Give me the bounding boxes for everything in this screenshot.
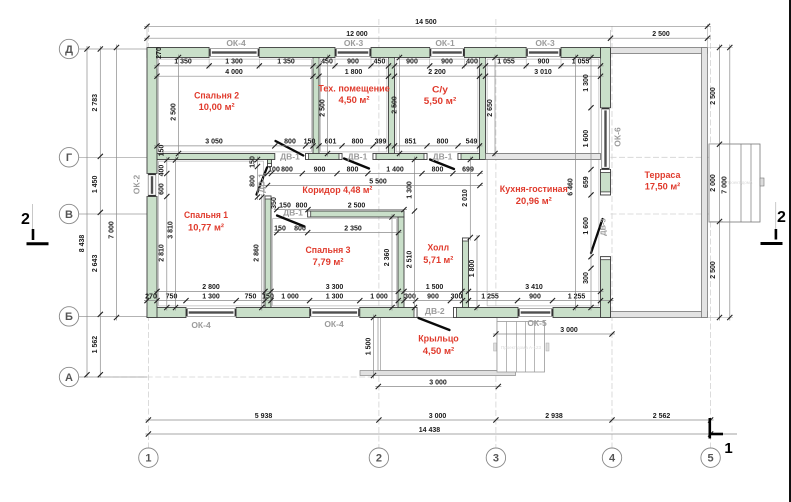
- svg-text:1 255: 1 255: [568, 293, 586, 300]
- svg-text:2 810: 2 810: [159, 244, 166, 262]
- svg-text:ДВ-1: ДВ-1: [433, 152, 453, 162]
- svg-text:2 350: 2 350: [344, 225, 362, 232]
- svg-text:2 500: 2 500: [710, 261, 717, 279]
- svg-text:549: 549: [466, 139, 478, 146]
- svg-text:300: 300: [451, 293, 463, 300]
- svg-text:900: 900: [314, 166, 326, 173]
- svg-text:1 300: 1 300: [202, 293, 220, 300]
- svg-text:659: 659: [583, 176, 590, 188]
- svg-text:ОК-2: ОК-2: [132, 175, 142, 195]
- svg-text:Коридор 4,48 м²: Коридор 4,48 м²: [302, 185, 372, 196]
- svg-text:2: 2: [376, 453, 382, 465]
- svg-text:3: 3: [493, 453, 499, 465]
- svg-text:А: А: [65, 372, 73, 384]
- svg-text:399: 399: [375, 139, 387, 146]
- svg-text:Спальня 2: Спальня 2: [194, 90, 239, 101]
- svg-text:ДВ-1: ДВ-1: [348, 152, 368, 162]
- svg-text:7 000: 7 000: [722, 176, 729, 194]
- svg-text:1 450: 1 450: [92, 176, 99, 194]
- svg-text:14 438: 14 438: [419, 427, 441, 434]
- svg-text:3 300: 3 300: [326, 284, 344, 291]
- svg-text:800: 800: [249, 175, 256, 187]
- svg-text:3 050: 3 050: [205, 139, 223, 146]
- svg-text:8 438: 8 438: [79, 235, 86, 253]
- svg-text:1 350: 1 350: [277, 59, 295, 66]
- svg-text:150: 150: [304, 139, 316, 146]
- svg-text:1 800: 1 800: [469, 260, 476, 278]
- svg-text:6 460: 6 460: [567, 178, 574, 196]
- svg-text:800: 800: [352, 139, 364, 146]
- svg-text:2: 2: [21, 211, 30, 228]
- svg-text:3 000: 3 000: [429, 379, 447, 386]
- svg-text:300: 300: [583, 272, 590, 284]
- svg-text:851: 851: [405, 139, 417, 146]
- svg-text:Спальня 3: Спальня 3: [306, 245, 351, 256]
- svg-text:1 400: 1 400: [386, 166, 404, 173]
- svg-text:5: 5: [708, 453, 714, 465]
- svg-text:699: 699: [462, 166, 474, 173]
- svg-text:2 783: 2 783: [92, 94, 99, 112]
- svg-text:350: 350: [271, 197, 278, 209]
- svg-text:400: 400: [466, 59, 478, 66]
- svg-text:ОК-3: ОК-3: [344, 38, 364, 48]
- svg-text:900: 900: [406, 59, 418, 66]
- svg-text:Терраса: Терраса: [645, 170, 682, 181]
- svg-text:900: 900: [347, 59, 359, 66]
- svg-text:800: 800: [347, 166, 359, 173]
- svg-text:2 500: 2 500: [710, 87, 717, 105]
- svg-text:Проект дома А-123: Проект дома А-123: [501, 345, 542, 350]
- svg-text:270: 270: [156, 47, 163, 59]
- svg-text:1 055: 1 055: [497, 59, 515, 66]
- svg-text:4,50 м²: 4,50 м²: [339, 95, 370, 106]
- svg-text:В: В: [65, 209, 73, 221]
- svg-text:3 810: 3 810: [167, 221, 174, 239]
- svg-text:Г: Г: [66, 152, 73, 164]
- svg-text:ДВ-2: ДВ-2: [425, 306, 445, 316]
- svg-text:2: 2: [777, 209, 786, 226]
- svg-text:Тех. помещение: Тех. помещение: [318, 83, 390, 94]
- svg-text:7 000: 7 000: [108, 221, 115, 239]
- svg-text:270: 270: [145, 293, 157, 300]
- svg-text:Д: Д: [65, 44, 73, 56]
- svg-text:12 000: 12 000: [346, 31, 368, 38]
- svg-text:ДВ-1: ДВ-1: [280, 152, 300, 162]
- svg-text:Крыльцо: Крыльцо: [418, 334, 459, 345]
- svg-text:150: 150: [249, 156, 256, 168]
- svg-text:2 500: 2 500: [652, 31, 670, 38]
- svg-text:1 000: 1 000: [370, 293, 388, 300]
- svg-text:2 562: 2 562: [653, 413, 671, 420]
- svg-text:1 600: 1 600: [583, 217, 590, 235]
- svg-text:1 500: 1 500: [426, 284, 444, 291]
- svg-text:4: 4: [609, 453, 616, 465]
- svg-text:600: 600: [159, 183, 166, 195]
- svg-text:С/у: С/у: [432, 84, 449, 95]
- svg-text:2 200: 2 200: [428, 69, 446, 76]
- svg-text:ОК-4: ОК-4: [191, 320, 211, 330]
- svg-text:5,71 м²: 5,71 м²: [423, 255, 453, 266]
- svg-text:150: 150: [262, 293, 274, 300]
- svg-text:1 562: 1 562: [92, 336, 99, 354]
- svg-text:2 650: 2 650: [487, 99, 494, 117]
- svg-text:2 938: 2 938: [545, 413, 563, 420]
- svg-text:150: 150: [274, 225, 286, 232]
- svg-text:750: 750: [245, 293, 257, 300]
- svg-text:4 000: 4 000: [225, 69, 243, 76]
- svg-text:2 860: 2 860: [254, 244, 261, 262]
- svg-text:ДВ-1: ДВ-1: [257, 173, 267, 193]
- svg-text:1 055: 1 055: [572, 59, 590, 66]
- svg-text:3 000: 3 000: [429, 413, 447, 420]
- svg-text:3 000: 3 000: [560, 327, 578, 334]
- svg-text:900: 900: [427, 293, 439, 300]
- svg-text:2 500: 2 500: [170, 103, 177, 121]
- svg-text:2 500: 2 500: [348, 202, 366, 209]
- svg-text:ОК-3: ОК-3: [535, 38, 555, 48]
- svg-text:2 360: 2 360: [384, 249, 391, 267]
- svg-text:1 800: 1 800: [345, 69, 363, 76]
- svg-text:1 300: 1 300: [225, 59, 243, 66]
- svg-text:800: 800: [437, 139, 449, 146]
- svg-text:4,50 м²: 4,50 м²: [423, 346, 455, 357]
- svg-text:7,79 м²: 7,79 м²: [313, 257, 344, 268]
- svg-text:20,96 м²: 20,96 м²: [516, 196, 552, 207]
- svg-text:ОК-1: ОК-1: [435, 38, 455, 48]
- svg-text:5 938: 5 938: [255, 413, 273, 420]
- svg-text:ДВ-1: ДВ-1: [283, 208, 303, 218]
- svg-text:400: 400: [159, 165, 166, 177]
- svg-text:800: 800: [284, 139, 296, 146]
- svg-text:1 300: 1 300: [406, 181, 413, 199]
- svg-text:Холл: Холл: [428, 242, 450, 253]
- svg-text:2 800: 2 800: [202, 284, 220, 291]
- svg-text:1 300: 1 300: [583, 74, 590, 92]
- svg-text:5,50 м²: 5,50 м²: [424, 96, 457, 107]
- svg-text:100: 100: [268, 166, 280, 173]
- svg-text:2 010: 2 010: [462, 189, 469, 207]
- svg-text:1 500: 1 500: [365, 338, 372, 356]
- svg-text:3 010: 3 010: [534, 69, 552, 76]
- svg-text:800: 800: [281, 166, 293, 173]
- svg-text:450: 450: [321, 59, 333, 66]
- svg-text:2 500: 2 500: [391, 96, 398, 114]
- svg-text:1 000: 1 000: [281, 293, 299, 300]
- svg-text:800: 800: [294, 225, 306, 232]
- svg-text:ОК-4: ОК-4: [226, 38, 246, 48]
- svg-text:ДВ-3: ДВ-3: [599, 218, 608, 235]
- svg-text:ОК-4: ОК-4: [324, 319, 344, 329]
- svg-text:ОК-5: ОК-5: [527, 318, 547, 328]
- svg-text:10,77 м²: 10,77 м²: [188, 222, 224, 233]
- svg-text:900: 900: [529, 293, 541, 300]
- svg-text:3 410: 3 410: [525, 284, 543, 291]
- svg-text:2 500: 2 500: [319, 99, 326, 117]
- svg-text:800: 800: [432, 166, 444, 173]
- svg-text:1: 1: [724, 440, 732, 457]
- svg-text:601: 601: [325, 139, 337, 146]
- svg-text:1 255: 1 255: [481, 293, 499, 300]
- svg-text:Спальня 1: Спальня 1: [184, 210, 229, 221]
- svg-text:2 643: 2 643: [92, 255, 99, 273]
- svg-text:Кухня-гостиная: Кухня-гостиная: [500, 184, 568, 195]
- svg-text:1 300: 1 300: [326, 293, 344, 300]
- svg-text:900: 900: [538, 59, 550, 66]
- svg-text:2 510: 2 510: [406, 251, 413, 269]
- svg-text:Б: Б: [65, 311, 73, 323]
- svg-text:450: 450: [374, 59, 386, 66]
- svg-text:14 500: 14 500: [415, 19, 437, 26]
- svg-text:10,00 м²: 10,00 м²: [199, 102, 235, 113]
- svg-text:2 000: 2 000: [710, 174, 717, 192]
- svg-text:1 600: 1 600: [583, 130, 590, 148]
- svg-text:150: 150: [159, 145, 166, 157]
- svg-text:ОК-6: ОК-6: [613, 127, 623, 147]
- svg-text:1: 1: [145, 453, 151, 465]
- svg-text:900: 900: [441, 59, 453, 66]
- svg-text:17,50 м²: 17,50 м²: [645, 181, 681, 192]
